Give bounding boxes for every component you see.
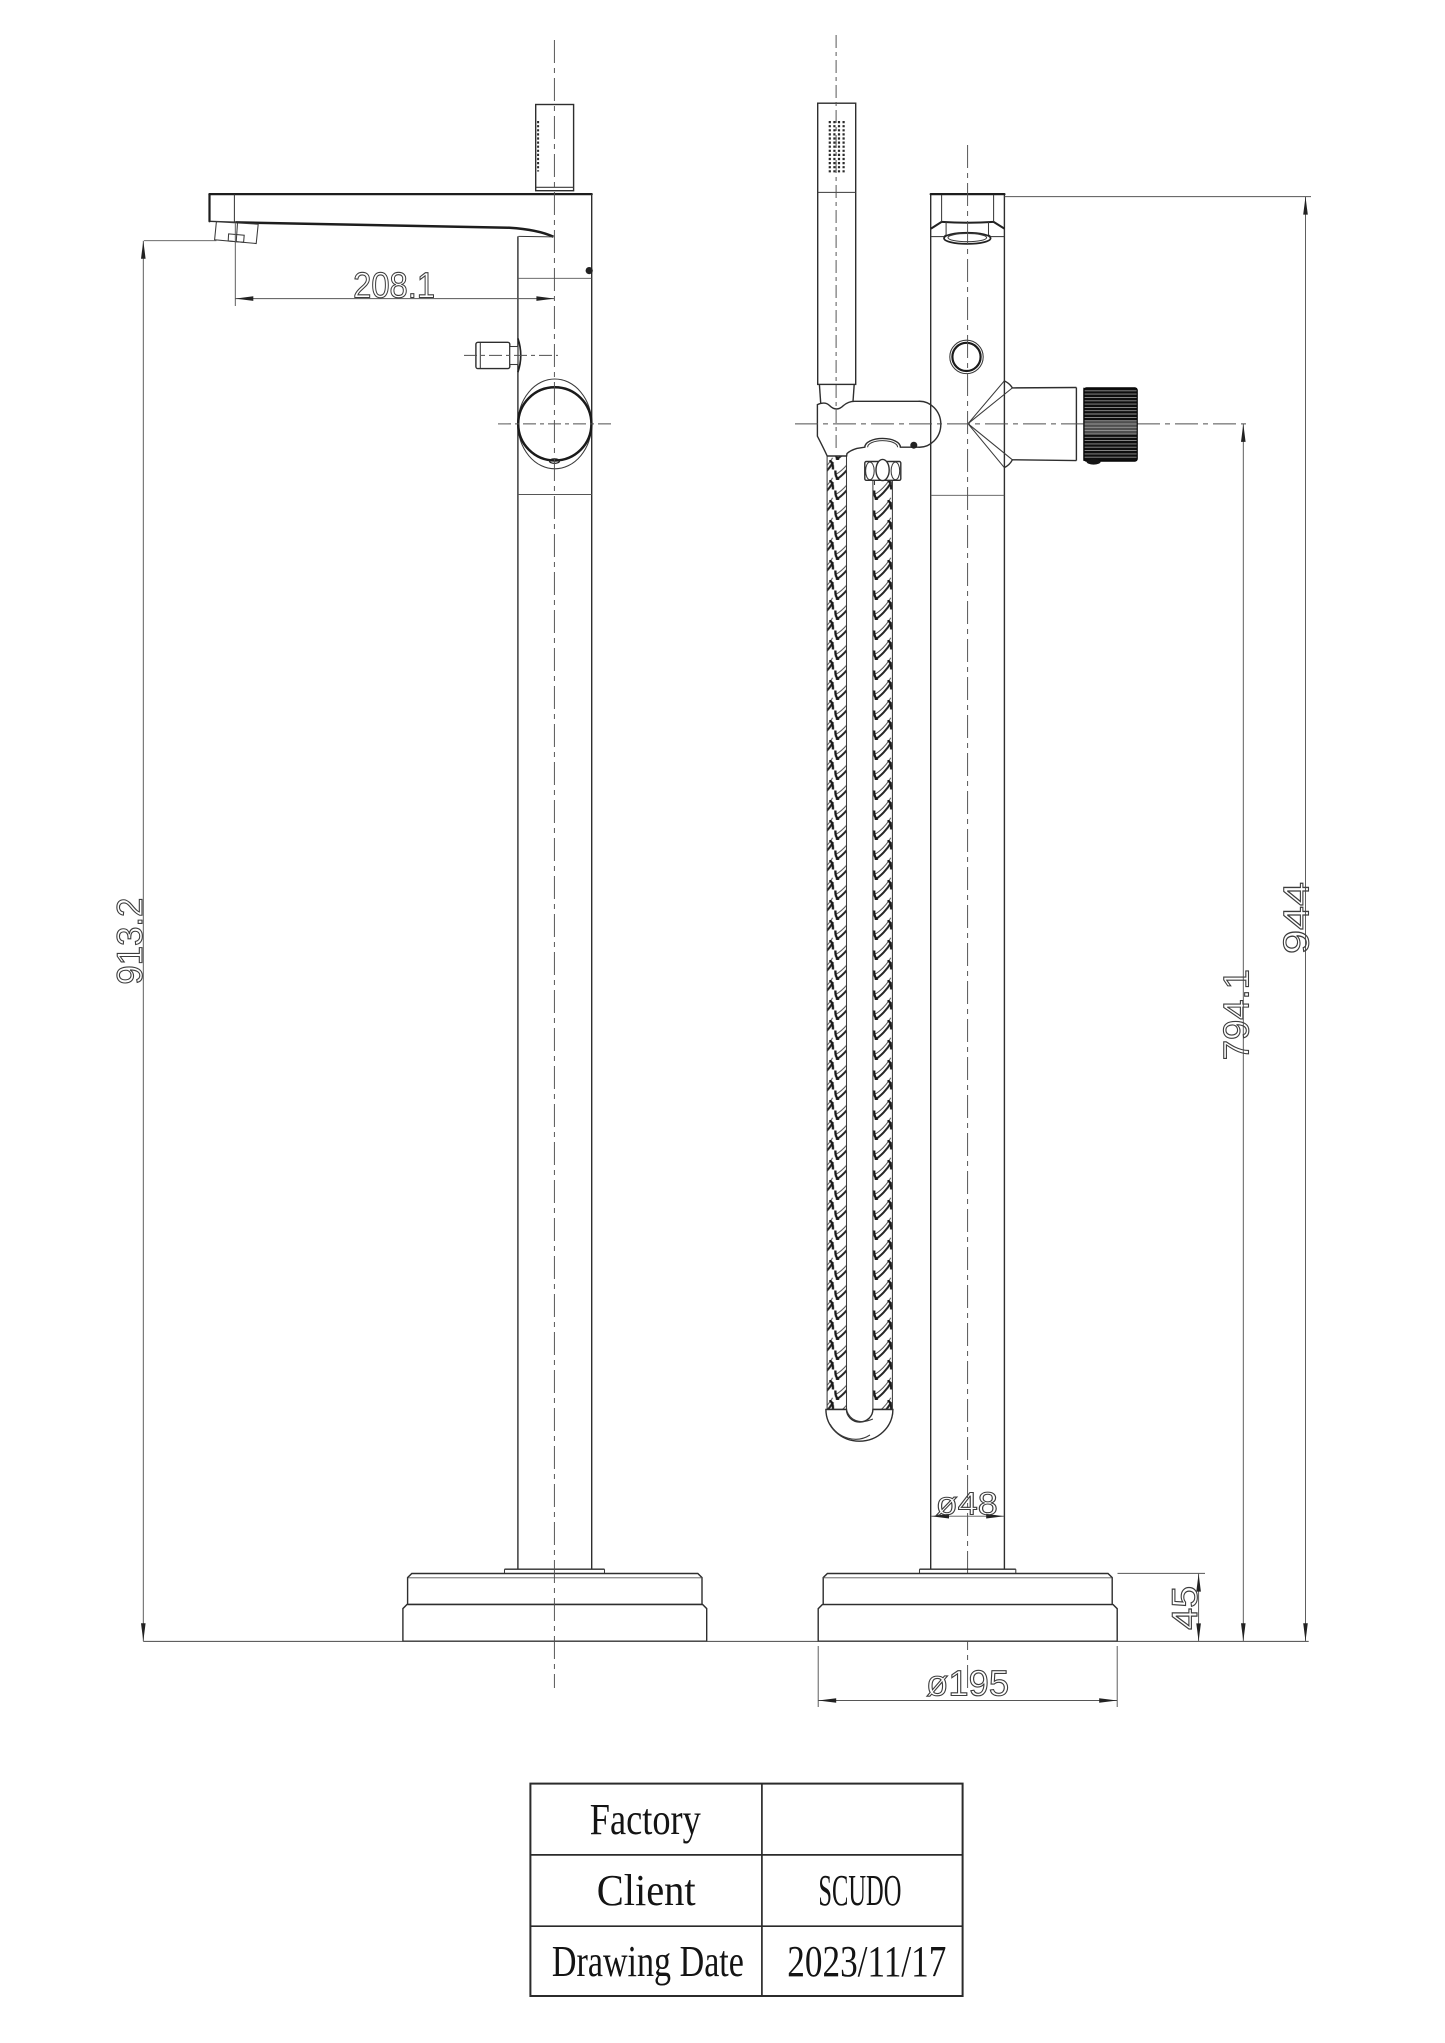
svg-text:944: 944 bbox=[1275, 882, 1316, 954]
svg-text:Client: Client bbox=[597, 1866, 696, 1915]
svg-text:ø195: ø195 bbox=[926, 1663, 1009, 1704]
svg-text:794.1: 794.1 bbox=[1216, 969, 1257, 1060]
svg-text:ø48: ø48 bbox=[936, 1485, 998, 1521]
svg-text:208.1: 208.1 bbox=[353, 265, 435, 306]
svg-text:913.2: 913.2 bbox=[109, 898, 150, 985]
svg-text:2023/11/17: 2023/11/17 bbox=[787, 1937, 946, 1986]
svg-text:Drawing Date: Drawing Date bbox=[552, 1937, 744, 1986]
svg-text:45: 45 bbox=[1164, 1586, 1205, 1630]
svg-text:SCUDO: SCUDO bbox=[818, 1866, 901, 1915]
svg-text:Factory: Factory bbox=[590, 1795, 701, 1844]
